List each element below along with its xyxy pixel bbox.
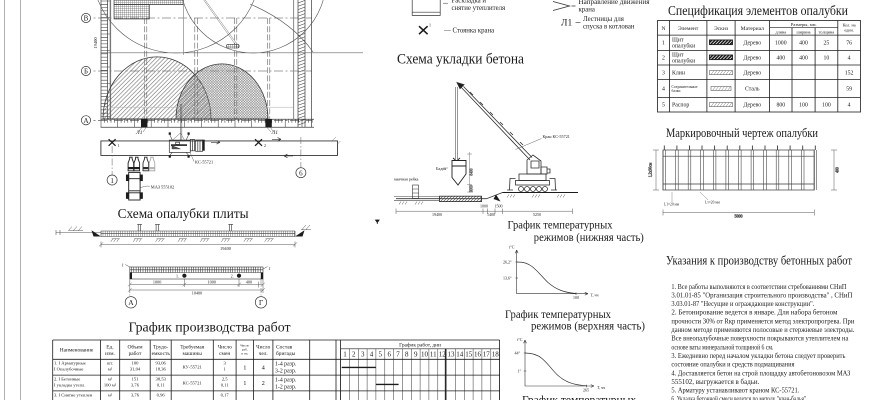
svg-text:Схема опалубки плиты: Схема опалубки плиты xyxy=(118,206,249,221)
svg-text:100: 100 xyxy=(573,295,579,300)
svg-text:Трудо-: Трудо- xyxy=(153,345,169,351)
svg-text:емкость: емкость xyxy=(152,351,171,357)
svg-text:3. I Снятие утеплен: 3. I Снятие утеплен xyxy=(54,393,93,398)
svg-text:1.: 1. xyxy=(176,274,179,279)
svg-text:Л1: Л1 xyxy=(561,19,572,29)
svg-text:График производства работ: График производства работ xyxy=(129,320,291,335)
svg-text:1400: 1400 xyxy=(487,212,495,217)
svg-text:1: 1 xyxy=(243,380,246,387)
svg-text:данном методе применяются поло: данном методе применяются полосовые и ст… xyxy=(671,325,854,334)
svg-text:13: 13 xyxy=(448,351,456,359)
svg-text:1. I Арматурные: 1. I Арматурные xyxy=(54,361,86,366)
svg-text:152: 152 xyxy=(845,71,854,77)
svg-text:Дерево: Дерево xyxy=(743,103,761,109)
svg-text:400: 400 xyxy=(799,41,808,47)
svg-text:2: 2 xyxy=(662,56,665,62)
svg-text:крана: крана xyxy=(579,6,595,13)
svg-text:состояние опалубки и средств п: состояние опалубки и средств подмащивани… xyxy=(671,360,795,369)
svg-text:Lт=20 мм: Lт=20 мм xyxy=(705,201,721,205)
svg-text:КС-55721: КС-55721 xyxy=(183,381,203,386)
svg-text:17: 17 xyxy=(483,351,491,359)
svg-text:400: 400 xyxy=(836,167,840,173)
svg-text:265: 265 xyxy=(583,388,589,393)
svg-text:L1=20 мм: L1=20 мм xyxy=(664,203,680,207)
svg-text:Л1: Л1 xyxy=(135,130,143,136)
svg-text:400: 400 xyxy=(799,56,808,62)
svg-text:м³: м³ xyxy=(108,377,113,382)
svg-text:Состав: Состав xyxy=(276,345,293,351)
svg-text:работ: работ xyxy=(129,350,142,357)
svg-text:График температурных: График температурных xyxy=(505,309,611,321)
svg-text:10: 10 xyxy=(421,351,429,359)
svg-text:5250: 5250 xyxy=(533,212,541,217)
svg-text:основе ваты минеральной толщин: основе ваты минеральной толщиной 6 см. xyxy=(671,342,773,351)
svg-text:18: 18 xyxy=(492,351,500,359)
svg-text:6: 6 xyxy=(387,351,391,359)
svg-text:1: 1 xyxy=(110,177,114,185)
svg-text:1: 1 xyxy=(269,266,271,271)
svg-text:3: 3 xyxy=(662,71,665,77)
svg-text:Распор: Распор xyxy=(672,103,689,109)
svg-text:Сталь: Сталь xyxy=(745,87,760,93)
svg-text:2: 2 xyxy=(352,351,356,359)
svg-text:19400: 19400 xyxy=(220,246,232,251)
svg-text:14: 14 xyxy=(456,351,464,359)
svg-text:режимов (верхняя часть): режимов (верхняя часть) xyxy=(531,320,645,332)
svg-text:100 м²: 100 м² xyxy=(104,383,117,388)
svg-text:9: 9 xyxy=(414,351,418,359)
svg-text:маячная рейка: маячная рейка xyxy=(394,177,419,182)
svg-text:25: 25 xyxy=(824,41,830,47)
svg-text:5: 5 xyxy=(662,103,665,109)
svg-text:1500: 1500 xyxy=(495,204,503,209)
svg-text:КС-55721: КС-55721 xyxy=(195,160,213,165)
svg-text:Б: Б xyxy=(84,68,88,76)
svg-text:снятие утеплителя: снятие утеплителя xyxy=(452,5,506,12)
svg-text:3000: 3000 xyxy=(470,185,474,192)
svg-text:11: 11 xyxy=(430,351,437,359)
svg-text:1: 1 xyxy=(118,143,120,148)
svg-text:МАЗ 555102: МАЗ 555102 xyxy=(151,185,174,190)
svg-text:Дерево: Дерево xyxy=(743,56,761,62)
svg-text:Раскладка и: Раскладка и xyxy=(452,0,487,5)
svg-text:График температурных: График температурных xyxy=(522,395,636,400)
svg-text:длина: длина xyxy=(776,29,787,34)
svg-text:1000: 1000 xyxy=(775,41,787,47)
svg-text:А: А xyxy=(83,117,88,125)
svg-text:Наименование: Наименование xyxy=(60,348,94,354)
svg-text:100: 100 xyxy=(132,361,140,366)
svg-text:Спецификация элементов опалубк: Спецификация элементов опалубки xyxy=(668,3,848,18)
svg-text:А: А xyxy=(128,298,134,307)
svg-text:режимов (нижняя часть): режимов (нижняя часть) xyxy=(534,232,644,244)
svg-text:График температурных: График температурных xyxy=(508,220,613,232)
svg-text:2. I Бетонные: 2. I Бетонные xyxy=(54,377,80,382)
svg-text:1: 1 xyxy=(429,23,431,28)
svg-text:1000: 1000 xyxy=(208,279,216,284)
svg-text:Лестницы для: Лестницы для xyxy=(583,16,624,23)
svg-text:КУ-55721: КУ-55721 xyxy=(183,365,203,370)
svg-text:16: 16 xyxy=(474,351,482,359)
svg-text:3.01.01-85 "Организация строит: 3.01.01-85 "Организация строительного пр… xyxy=(671,290,853,299)
svg-text:в см.: в см. xyxy=(241,352,248,356)
svg-text:6: 6 xyxy=(299,170,303,178)
svg-text:I укладка утепл.: I укладка утепл. xyxy=(54,383,85,388)
svg-text:7: 7 xyxy=(396,351,400,359)
svg-text:Маркировочный чертеж опалубки: Маркировочный чертеж опалубки xyxy=(666,125,818,140)
svg-text:2. Бетонирование ведется в янв: 2. Бетонирование ведется в январе. Для н… xyxy=(671,308,837,317)
svg-text:опалубки: опалубки xyxy=(672,58,695,65)
svg-text:1: 1 xyxy=(243,365,246,372)
svg-text:Ед.: Ед. xyxy=(106,345,113,351)
svg-text:толщина: толщина xyxy=(819,29,835,34)
svg-text:1: 1 xyxy=(343,351,347,359)
svg-text:ширина: ширина xyxy=(797,29,811,34)
svg-text:1°: 1° xyxy=(518,369,522,374)
svg-text:44°: 44° xyxy=(515,351,521,356)
svg-text:График работ, дни: График работ, дни xyxy=(399,341,441,348)
svg-text:изм.: изм. xyxy=(105,351,115,357)
svg-text:Кран КС-55721: Кран КС-55721 xyxy=(543,134,570,139)
svg-text:един.: един. xyxy=(844,28,853,33)
svg-text:1-4 разр.: 1-4 разр. xyxy=(275,378,297,384)
svg-text:6. Укладка бетонной смеси веде: 6. Укладка бетонной смеси ведется по мет… xyxy=(671,394,807,400)
svg-text:1: 1 xyxy=(122,263,124,268)
svg-text:N: N xyxy=(661,26,665,32)
svg-text:1-4 разр.: 1-4 разр. xyxy=(275,362,297,368)
svg-text:Г: Г xyxy=(259,298,264,307)
svg-text:Л1: Л1 xyxy=(271,130,279,136)
svg-text:Бадья: Бадья xyxy=(436,166,446,171)
svg-text:3-2 разр.: 3-2 разр. xyxy=(275,369,297,375)
svg-text:бригады: бригады xyxy=(276,350,296,357)
svg-text:В: В xyxy=(84,15,89,23)
svg-text:Материал: Материал xyxy=(741,26,765,32)
svg-text:смен: смен xyxy=(219,351,230,357)
svg-text:I Опалубочные: I Опалубочные xyxy=(54,367,83,372)
svg-text:19400: 19400 xyxy=(432,212,442,217)
svg-text:100: 100 xyxy=(799,103,808,109)
svg-text:м²: м² xyxy=(108,367,113,372)
svg-text:Элемент: Элемент xyxy=(678,26,699,32)
svg-text:Направление движения: Направление движения xyxy=(579,0,650,6)
svg-text:10: 10 xyxy=(824,56,830,62)
svg-text:чел.: чел. xyxy=(259,351,268,357)
svg-text:2.: 2. xyxy=(231,274,234,279)
svg-text:1000: 1000 xyxy=(480,204,488,209)
svg-text:12: 12 xyxy=(439,351,447,359)
svg-text:опалубки: опалубки xyxy=(672,43,695,50)
svg-text:400: 400 xyxy=(246,279,252,284)
svg-text:1-2 разр.: 1-2 разр. xyxy=(275,385,297,391)
svg-text:Указания к производству бетонн: Указания к производству бетонных работ xyxy=(666,253,852,268)
svg-text:19400: 19400 xyxy=(93,37,98,49)
svg-text:Эскиз: Эскиз xyxy=(714,26,729,32)
svg-text:— Стоянка крана: — Стоянка крана xyxy=(443,28,494,35)
svg-text:151: 151 xyxy=(132,377,140,382)
svg-text:1000: 1000 xyxy=(153,279,161,284)
svg-text:м²: м² xyxy=(108,393,113,398)
svg-text:76: 76 xyxy=(846,41,852,47)
svg-text:400: 400 xyxy=(776,56,785,62)
svg-text:10400: 10400 xyxy=(192,291,202,296)
svg-text:Клин: Клин xyxy=(672,71,685,77)
svg-text:59: 59 xyxy=(846,87,852,93)
svg-text:Объем: Объем xyxy=(127,344,143,351)
svg-text:4: 4 xyxy=(848,103,851,109)
svg-text:машины: машины xyxy=(183,351,203,357)
svg-text:4: 4 xyxy=(662,87,665,93)
svg-text:800: 800 xyxy=(776,103,785,109)
svg-text:2: 2 xyxy=(264,143,266,148)
svg-text:балки: балки xyxy=(672,89,681,93)
svg-text:4: 4 xyxy=(848,56,851,62)
svg-text:100: 100 xyxy=(822,103,831,109)
svg-text:Число: Число xyxy=(218,345,232,351)
svg-text:шт.: шт. xyxy=(107,361,113,366)
svg-text:5000: 5000 xyxy=(735,214,743,219)
svg-text:3: 3 xyxy=(361,351,365,359)
svg-text:555102, выгружается в бадьи.: 555102, выгружается в бадьи. xyxy=(671,377,759,386)
svg-text:Число: Число xyxy=(256,345,270,351)
svg-text:спуска в котлован: спуска в котлован xyxy=(583,23,635,30)
svg-text:8400: 8400 xyxy=(470,168,474,175)
svg-text:1: 1 xyxy=(662,41,665,47)
svg-text:Требуемая: Требуемая xyxy=(180,344,204,351)
svg-text:Дерево: Дерево xyxy=(743,71,761,77)
svg-text:t°C: t°C xyxy=(517,337,523,342)
svg-text:2: 2 xyxy=(262,380,265,387)
svg-text:5: 5 xyxy=(379,351,383,359)
svg-text:Дерево: Дерево xyxy=(743,41,761,47)
svg-text:t°C: t°C xyxy=(509,245,515,250)
svg-text:4: 4 xyxy=(370,351,374,359)
svg-text:8: 8 xyxy=(405,351,409,359)
svg-text:Схема укладки бетона: Схема укладки бетона xyxy=(397,52,525,68)
svg-text:15: 15 xyxy=(465,351,473,359)
